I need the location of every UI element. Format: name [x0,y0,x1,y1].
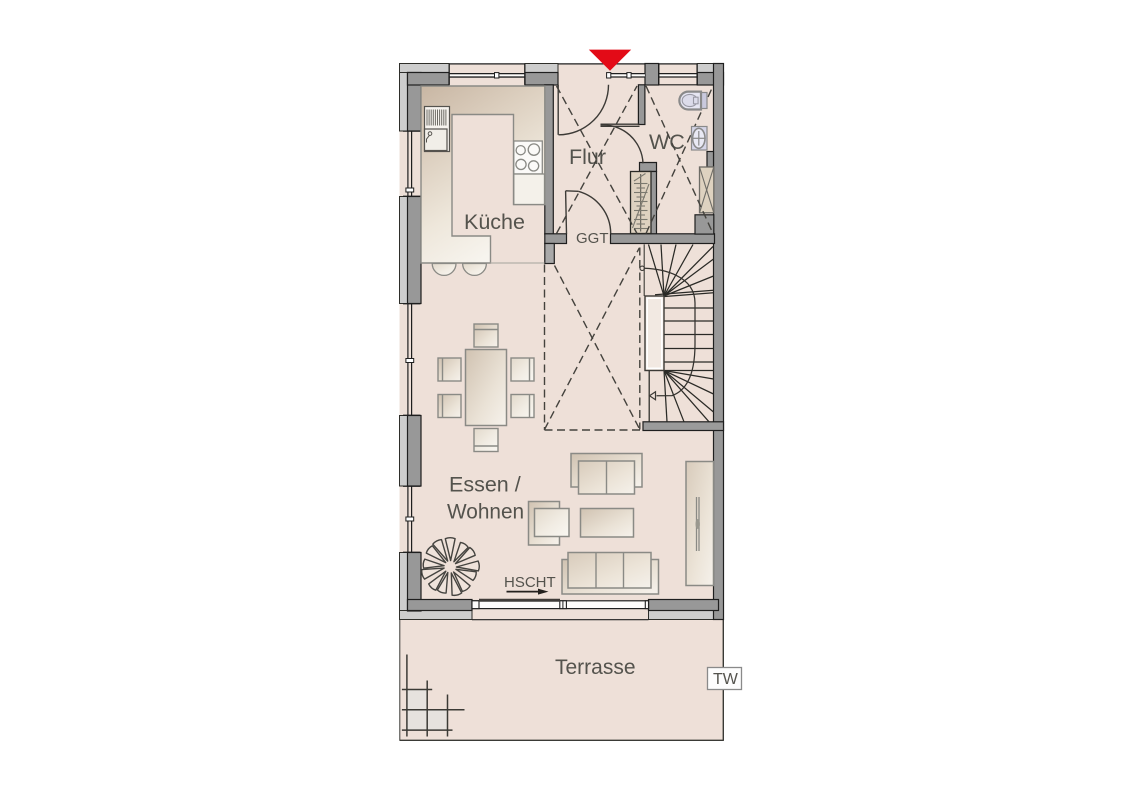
svg-text:Terrasse: Terrasse [555,656,636,679]
svg-text:GGT: GGT [576,230,609,247]
svg-text:Wohnen: Wohnen [447,501,524,524]
svg-text:HSCHT: HSCHT [504,574,556,591]
svg-text:Küche: Küche [464,210,525,234]
svg-text:TW: TW [713,671,739,688]
svg-text:Essen /: Essen / [449,473,521,497]
